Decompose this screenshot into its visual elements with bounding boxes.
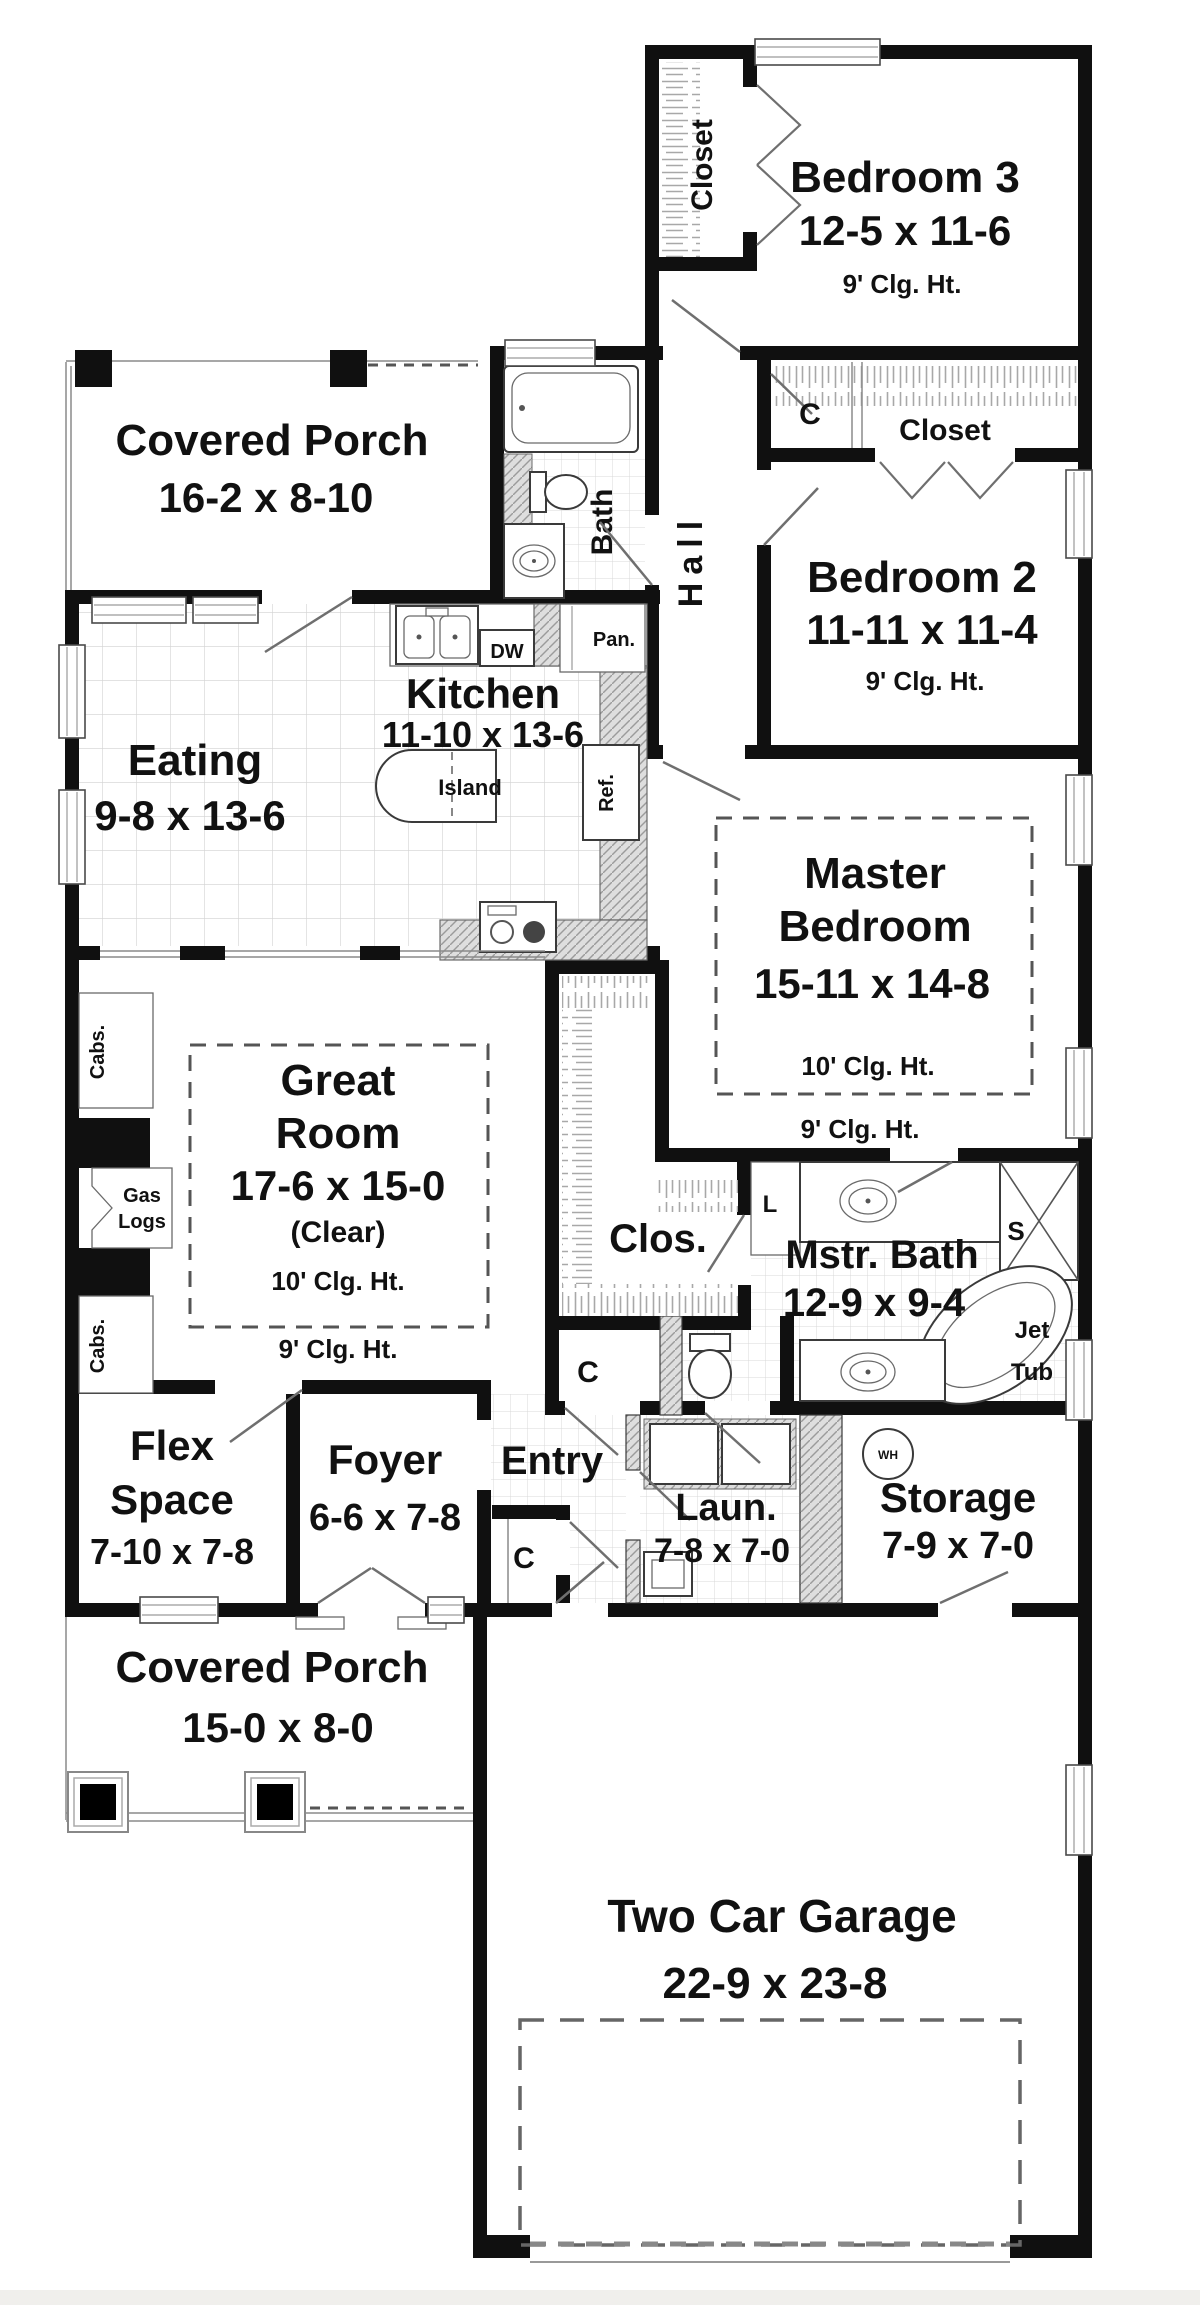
- master-closet-rod-south: [562, 1284, 738, 1316]
- master-closet-rod-west: [562, 990, 592, 1316]
- porch-column-decor: [68, 1772, 128, 1832]
- jet-tub-label-1: Jet: [1015, 1317, 1050, 1344]
- page-bottom-strip: [0, 2290, 1200, 2305]
- eating-dims: 9-8 x 13-6: [94, 792, 285, 839]
- laundry-dims: 7-8 x 7-0: [654, 1532, 790, 1570]
- island-label: Island: [438, 775, 502, 800]
- garage-name: Two Car Garage: [607, 1890, 956, 1942]
- window: [193, 597, 258, 623]
- great-room-name-2: Room: [276, 1109, 401, 1158]
- refrigerator-label: Ref.: [596, 774, 618, 812]
- eating-name: Eating: [128, 736, 262, 785]
- flex-name-2: Space: [110, 1476, 234, 1523]
- great-room-ceiling-inner: 10' Clg. Ht.: [271, 1266, 404, 1296]
- foyer-dims: 6-6 x 7-8: [309, 1497, 461, 1539]
- porch-top-dims: 16-2 x 8-10: [159, 474, 374, 521]
- porch-column-decor: [245, 1772, 305, 1832]
- garage-dims: 22-9 x 23-8: [662, 1959, 887, 2008]
- master-closet-rod-north: [562, 976, 652, 1008]
- range: [480, 902, 556, 952]
- great-room-clear: (Clear): [290, 1216, 385, 1249]
- bedroom2-name: Bedroom 2: [807, 553, 1037, 602]
- window: [1066, 470, 1092, 558]
- kitchen-dims: 11-10 x 13-6: [382, 714, 584, 755]
- bedroom3-ceiling: 9' Clg. Ht.: [843, 269, 962, 299]
- window: [59, 790, 85, 884]
- floor-plan-page: DW Ref. Island Pan.: [0, 0, 1200, 2305]
- bedroom2-ceiling: 9' Clg. Ht.: [866, 666, 985, 696]
- window: [755, 39, 880, 65]
- window: [1066, 1765, 1092, 1855]
- flex-name-1: Flex: [130, 1422, 215, 1469]
- porch-bottom-dims: 15-0 x 8-0: [182, 1704, 373, 1751]
- porch-top-name: Covered Porch: [116, 416, 429, 465]
- floor-plan-drawing: DW Ref. Island Pan.: [0, 0, 1200, 2305]
- gas-logs-label-2: Logs: [118, 1211, 166, 1233]
- c-closet-label: C: [799, 398, 821, 431]
- bed3-closet-label: Closet: [686, 119, 719, 211]
- master-bath-dims: 12-9 x 9-4: [783, 1281, 966, 1325]
- water-heater-label: WH: [878, 1448, 898, 1462]
- porch-column: [330, 350, 367, 387]
- foyer-name: Foyer: [328, 1436, 442, 1483]
- storage-dims: 7-9 x 7-0: [882, 1525, 1034, 1567]
- master-toilet: [689, 1334, 731, 1398]
- window: [92, 597, 186, 623]
- master-vanity-south: [800, 1340, 945, 1401]
- lower-c-label: C: [513, 1542, 535, 1575]
- bedroom3-name: Bedroom 3: [790, 153, 1020, 202]
- master-bath-name: Mstr. Bath: [785, 1233, 978, 1277]
- master-dims: 15-11 x 14-8: [754, 960, 990, 1007]
- master-name-2: Bedroom: [778, 902, 971, 951]
- window: [140, 1597, 218, 1623]
- great-room-dims: 17-6 x 15-0: [231, 1162, 446, 1209]
- window: [428, 1597, 464, 1623]
- pantry-label: Pan.: [593, 629, 635, 651]
- window: [59, 645, 85, 738]
- master-ceiling-inner: 10' Clg. Ht.: [801, 1051, 934, 1081]
- window: [1066, 1048, 1092, 1138]
- hall-label: Hall: [672, 513, 710, 607]
- bedroom2-dims: 11-11 x 11-4: [806, 606, 1038, 653]
- washer: [650, 1424, 718, 1484]
- cabinets-upper-label: Cabs.: [87, 1025, 109, 1079]
- water-heater: WH: [863, 1429, 913, 1479]
- jet-tub-label-2: Tub: [1011, 1359, 1053, 1386]
- master-closet-rod-mid: [658, 1180, 738, 1212]
- master-ceiling-outer: 9' Clg. Ht.: [801, 1114, 920, 1144]
- porch-bottom-name: Covered Porch: [116, 1643, 429, 1692]
- window: [1066, 775, 1092, 865]
- pantry: Pan.: [560, 604, 645, 672]
- master-vanity-north: [800, 1162, 1000, 1242]
- refrigerator: Ref.: [583, 745, 639, 840]
- flex-dims: 7-10 x 7-8: [90, 1531, 254, 1572]
- toilet: [530, 472, 587, 512]
- window: [505, 340, 595, 366]
- bed2-closet-label: Closet: [899, 414, 991, 447]
- laundry-name: Laun.: [675, 1487, 776, 1529]
- upper-c-label: C: [577, 1356, 599, 1389]
- bedroom3-dims: 12-5 x 11-6: [799, 207, 1012, 254]
- master-closet-label: Clos.: [609, 1217, 707, 1261]
- kitchen-sink: [396, 606, 478, 664]
- bath-vanity: [504, 524, 564, 598]
- gas-logs-label-1: Gas: [123, 1185, 161, 1207]
- kitchen-name: Kitchen: [406, 670, 560, 717]
- great-room-ceiling-outer: 9' Clg. Ht.: [279, 1334, 398, 1364]
- cabinets-lower-label: Cabs.: [87, 1319, 109, 1373]
- porch-column: [75, 350, 112, 387]
- window: [1066, 1340, 1092, 1420]
- linen-label: L: [763, 1191, 778, 1218]
- storage-name: Storage: [880, 1474, 1036, 1521]
- dishwasher: DW: [480, 630, 534, 666]
- kitchen-island: Island: [376, 750, 502, 822]
- master-name-1: Master: [804, 849, 946, 898]
- bath-label: Bath: [586, 489, 619, 556]
- front-door-sill: [296, 1617, 344, 1629]
- great-room-name-1: Great: [281, 1056, 396, 1105]
- shower-label: S: [1007, 1216, 1024, 1246]
- entry-label: Entry: [501, 1439, 604, 1483]
- shower: S: [1000, 1162, 1078, 1280]
- dryer: [722, 1424, 790, 1484]
- dishwasher-label: DW: [490, 641, 523, 663]
